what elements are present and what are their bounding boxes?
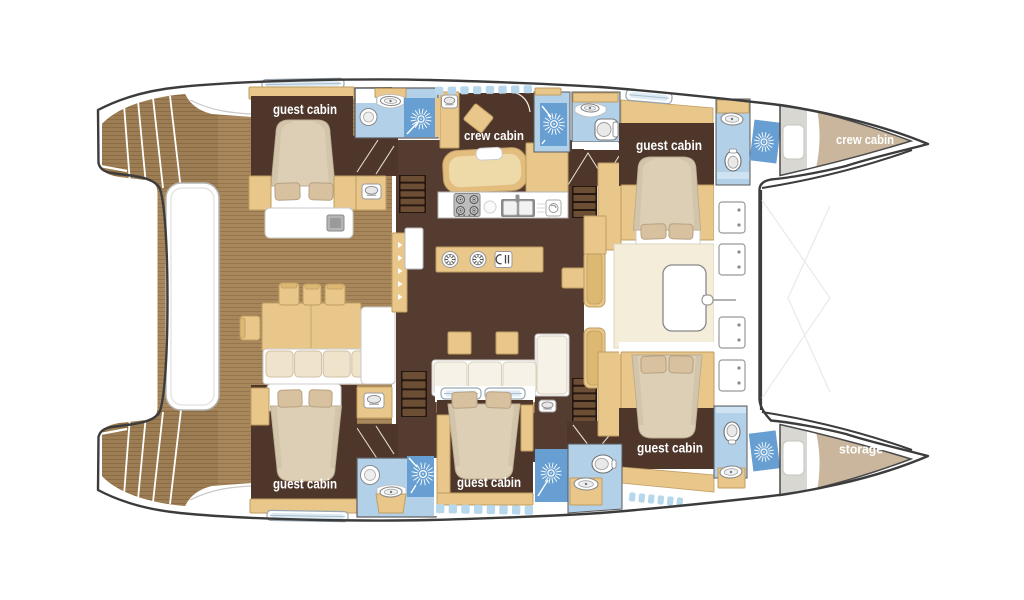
- svg-text:crew cabin: crew cabin: [464, 128, 524, 143]
- svg-text:guest cabin: guest cabin: [636, 138, 702, 153]
- svg-text:guest cabin: guest cabin: [637, 441, 703, 456]
- svg-text:guest cabin: guest cabin: [457, 475, 521, 490]
- svg-text:storage: storage: [839, 442, 883, 457]
- svg-text:guest cabin: guest cabin: [273, 102, 337, 117]
- svg-text:crew cabin: crew cabin: [836, 132, 894, 147]
- svg-text:guest cabin: guest cabin: [273, 477, 337, 492]
